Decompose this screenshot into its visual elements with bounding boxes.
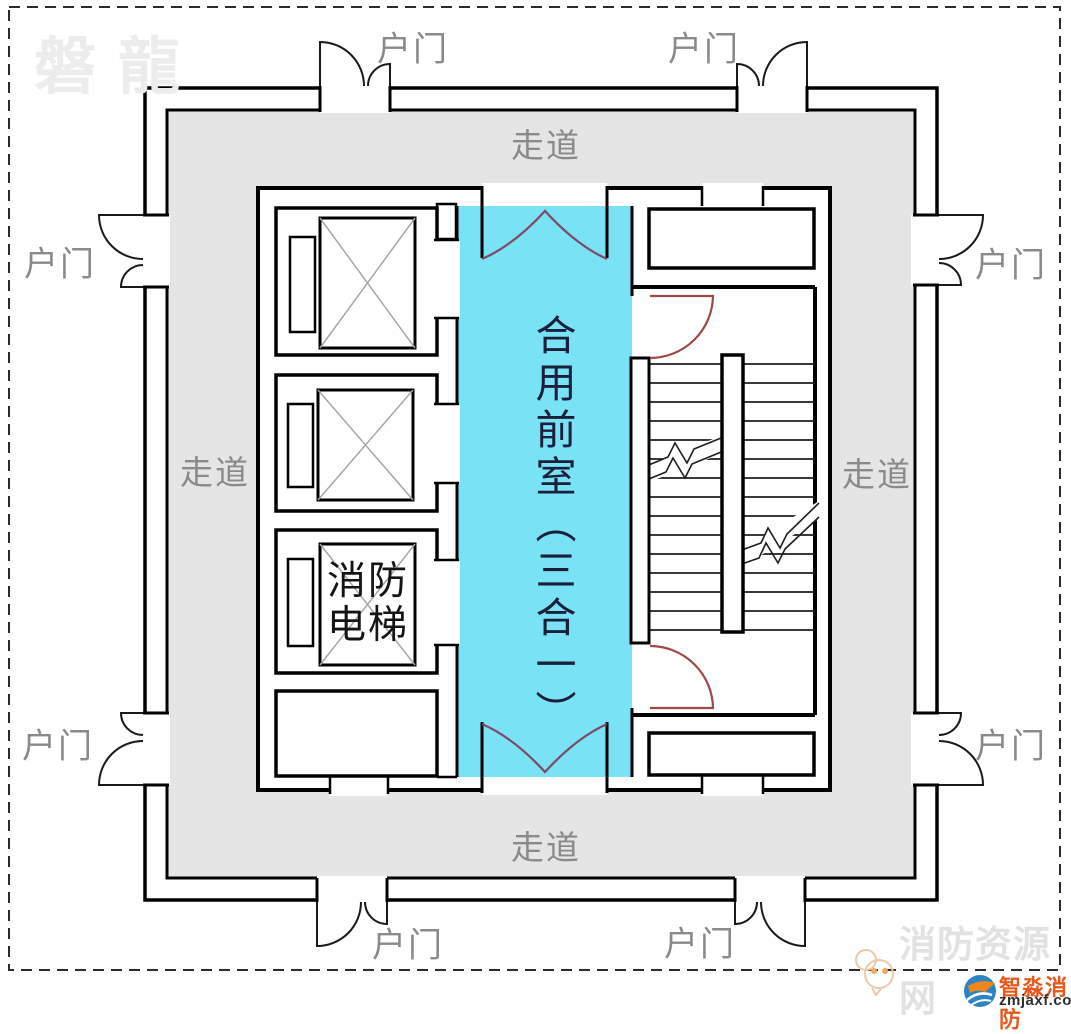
- front-room-label: 合用前室（三合一）: [522, 314, 582, 737]
- entry-door-label-top-right: 户门: [668, 22, 740, 71]
- corridor-label-top: 走道: [511, 119, 581, 167]
- elevator-bank: [276, 208, 460, 776]
- entry-door-right-lower: [911, 713, 983, 785]
- footer-brand-domain: zmjaxf.com: [999, 992, 1071, 1009]
- entry-door-top-right: [737, 42, 807, 113]
- corridor-label-left: 走道: [180, 446, 250, 494]
- floor-plan-canvas: 磐龍 走道 走道 走道 走道 户门 户门 户门 户门 户门 户门 户门 户门 消…: [0, 0, 1071, 1010]
- entry-door-label-right-upper: 户门: [975, 238, 1047, 287]
- entry-door-label-top-left: 户门: [377, 22, 449, 71]
- stair-bottom-room: [649, 733, 814, 775]
- stair-divider-wall: [722, 355, 743, 632]
- entry-door-bottom-right: [735, 876, 805, 946]
- entry-door-label-bottom-right: 户门: [664, 917, 736, 966]
- service-room: [276, 691, 437, 776]
- site-logo-icon: [856, 950, 893, 995]
- stair-left-wall: [631, 358, 649, 643]
- elevator-car-2: [318, 390, 413, 500]
- entry-door-label-left-lower: 户门: [22, 719, 94, 768]
- entry-door-label-bottom-left: 户门: [372, 918, 444, 967]
- fire-elevator-label: 消防 电梯: [327, 560, 409, 648]
- entry-door-label-right-lower: 户门: [975, 719, 1047, 768]
- entry-door-label-left-upper: 户门: [24, 237, 96, 286]
- corridor-label-bottom: 走道: [511, 821, 581, 869]
- entry-door-right-upper: [911, 215, 983, 285]
- entry-door-left-lower: [99, 713, 170, 785]
- elevator-landing-doors: [433, 240, 460, 645]
- stair-top-room: [649, 209, 814, 268]
- entry-door-left-upper: [99, 215, 170, 287]
- counterweight-3: [288, 559, 313, 646]
- elevator-car-1: [320, 218, 415, 348]
- fire-elevator-label-line2: 电梯: [327, 604, 409, 648]
- counterweight-2: [288, 404, 313, 487]
- wall-stub: [437, 204, 456, 239]
- watermark-brand: 磐龍: [34, 16, 202, 106]
- corridor-label-right: 走道: [842, 448, 912, 496]
- fire-elevator-label-line1: 消防: [327, 560, 409, 604]
- counterweight-1: [290, 237, 315, 332]
